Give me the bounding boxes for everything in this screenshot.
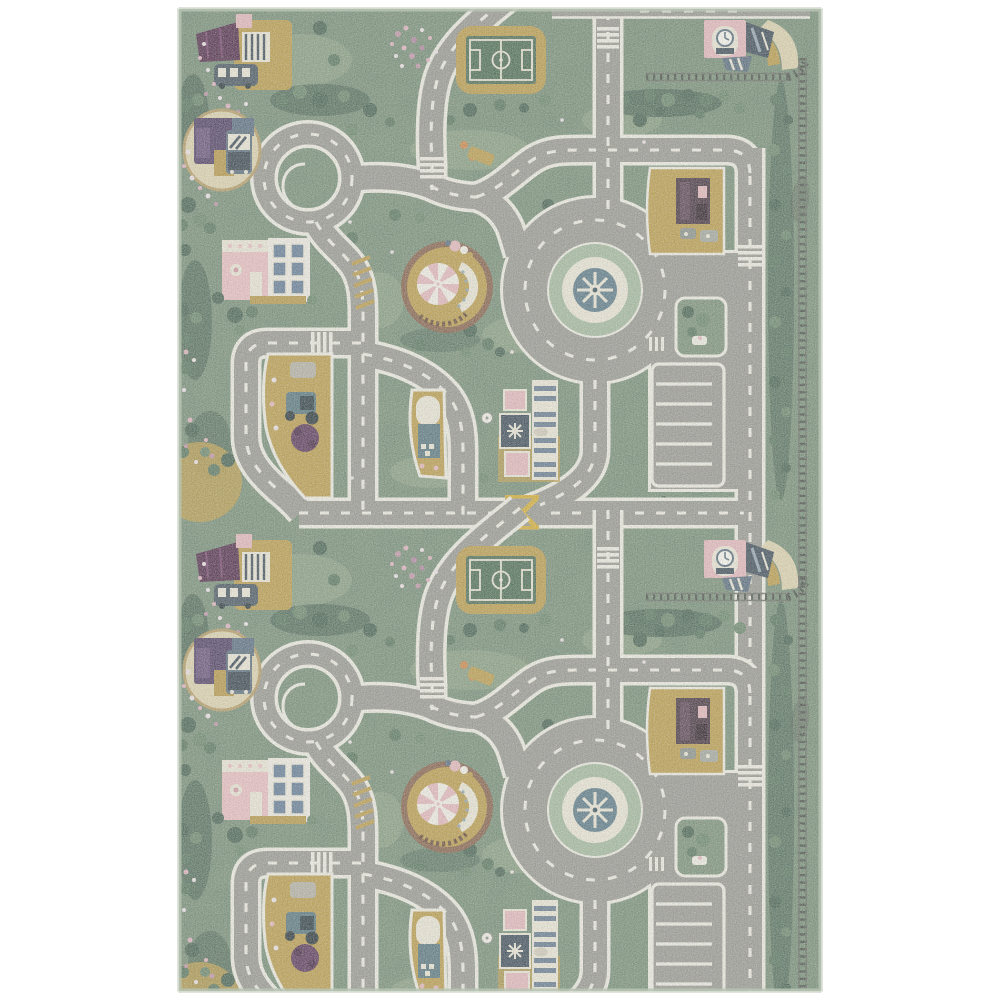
- play-rug: [158, 0, 823, 1000]
- play-rug-photo: [0, 0, 1000, 1000]
- product-photo-canvas: [0, 0, 1000, 1000]
